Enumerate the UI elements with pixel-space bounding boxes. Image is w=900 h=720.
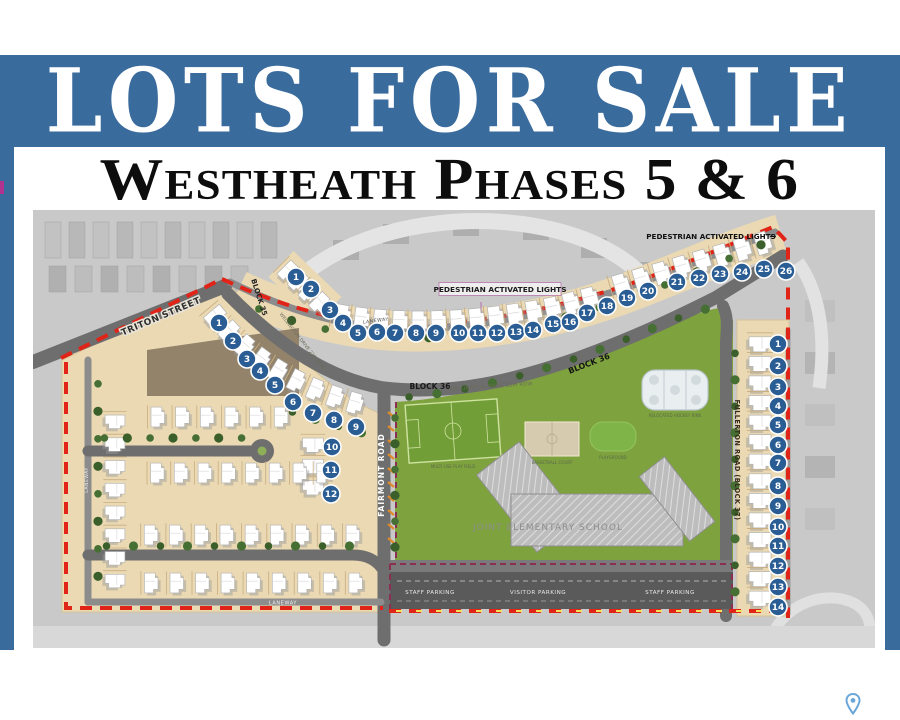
lot-number-text: 9 (433, 329, 439, 339)
tree (701, 305, 710, 314)
lot-marker-north-26: 26 (777, 262, 795, 280)
lot-number-text: 14 (527, 326, 540, 336)
lot-marker-north-19: 19 (618, 289, 636, 307)
lot-number-text: 2 (230, 337, 236, 347)
lot-marker-east-2: 2 (769, 357, 787, 375)
lot-marker-north-22: 22 (690, 269, 708, 287)
lot-number-text: 1 (216, 319, 222, 329)
subtitle-band: Westheath Phases 5 & 6 (14, 147, 885, 210)
soccer-field (405, 399, 501, 463)
lot-marker-inner-9: 9 (347, 418, 365, 436)
site-plan-map: TRITON STREET BLOCK 35 LANEWAY PEDESTRIA… (33, 210, 875, 648)
lot-number-text: 4 (257, 367, 263, 377)
lot-marker-east-5: 5 (769, 416, 787, 434)
tree (405, 393, 413, 401)
lot-number-text: 3 (327, 306, 333, 316)
lot-marker-east-13: 13 (769, 578, 787, 596)
basketball-court (525, 422, 579, 456)
lot-number-text: 8 (413, 329, 419, 339)
lot-number-text: 4 (775, 402, 781, 412)
street-label-laneway-bottom: LANEWAY (269, 601, 298, 607)
lot-marker-north-7: 7 (386, 324, 404, 342)
lot-marker-east-1: 1 (769, 335, 787, 353)
lot-marker-north-16: 16 (561, 313, 579, 331)
tree (675, 314, 683, 322)
playground-label: PLAYGROUND (599, 455, 627, 460)
lot-marker-north-17: 17 (578, 304, 596, 322)
map-pin-icon (845, 693, 861, 715)
tree (730, 534, 739, 543)
lot-marker-inner-5: 5 (266, 376, 284, 394)
lot-marker-east-3: 3 (769, 378, 787, 396)
lot-number-text: 5 (775, 421, 781, 431)
lot-marker-inner-1: 1 (210, 314, 228, 332)
lot-marker-north-9: 9 (427, 324, 445, 342)
lot-number-text: 6 (374, 328, 380, 338)
tree (322, 325, 330, 333)
tree (731, 562, 739, 570)
lot-marker-north-20: 20 (639, 282, 657, 300)
block-label-36a: BLOCK 36 (410, 382, 451, 391)
lot-number-text: 11 (325, 466, 338, 476)
sign-ped-lights-ne-arrow: → (770, 232, 777, 241)
tree (345, 541, 354, 550)
lot-marker-north-14: 14 (524, 321, 542, 339)
lot-number-text: 24 (736, 268, 749, 278)
street-label-laneway-left: LANEWAY (84, 467, 90, 493)
lot-marker-north-12: 12 (488, 324, 506, 342)
lot-marker-inner-12: 12 (322, 485, 340, 503)
lot-marker-north-18: 18 (598, 297, 616, 315)
lot-number-text: 12 (772, 562, 785, 572)
lot-marker-north-11: 11 (469, 324, 487, 342)
lot-number-text: 19 (621, 294, 634, 304)
tree (319, 542, 327, 550)
tree (183, 541, 192, 550)
tree (94, 435, 102, 443)
lot-number-text: 25 (758, 265, 771, 275)
lot-marker-inner-6: 6 (284, 393, 302, 411)
parking-label-staff-east: STAFF PARKING (645, 590, 695, 596)
tree (93, 572, 102, 581)
tree (756, 240, 765, 249)
lot-number-text: 3 (775, 383, 781, 393)
lot-number-text: 8 (775, 482, 781, 492)
lot-marker-east-11: 11 (769, 537, 787, 555)
playground (590, 422, 636, 451)
tree (129, 541, 138, 550)
site-plan-svg: TRITON STREET BLOCK 35 LANEWAY PEDESTRIA… (33, 210, 875, 648)
sign-ped-lights-mid: PEDESTRIAN ACTIVATED LIGHTS (433, 283, 566, 296)
cul-de-sac-island (258, 447, 267, 456)
tree (93, 407, 102, 416)
lot-marker-east-9: 9 (769, 497, 787, 515)
tree (101, 434, 109, 442)
tree (542, 363, 551, 372)
lot-marker-north-5: 5 (349, 324, 367, 342)
lot-marker-east-7: 7 (769, 454, 787, 472)
lot-marker-east-8: 8 (769, 477, 787, 495)
lot-marker-east-14: 14 (769, 598, 787, 616)
lot-number-text: 23 (714, 270, 727, 280)
lot-number-text: 14 (772, 603, 785, 613)
tree (516, 372, 524, 380)
lot-number-text: 1 (775, 340, 781, 350)
lot-marker-north-15: 15 (544, 315, 562, 333)
lot-marker-inner-4: 4 (251, 362, 269, 380)
lot-number-text: 10 (453, 329, 466, 339)
lot-marker-north-21: 21 (668, 273, 686, 291)
tree (391, 466, 399, 474)
school-parking (390, 560, 733, 609)
tree (192, 434, 200, 442)
lot-marker-north-10: 10 (450, 324, 468, 342)
lot-marker-north-1: 1 (287, 268, 305, 286)
lot-number-text: 7 (775, 459, 781, 469)
lot-number-text: 18 (601, 302, 614, 312)
lot-marker-inner-8: 8 (325, 411, 343, 429)
tree (725, 255, 733, 263)
lot-number-text: 6 (290, 398, 296, 408)
parking-label-staff-west: STAFF PARKING (405, 590, 455, 596)
lot-number-text: 12 (491, 329, 504, 339)
tree (730, 375, 739, 384)
lot-number-text: 5 (355, 329, 361, 339)
tree (211, 542, 219, 550)
tree (93, 517, 102, 526)
subtitle-text: Westheath Phases 5 & 6 (100, 149, 800, 208)
lot-number-text: 13 (772, 583, 785, 593)
lot-number-text: 6 (775, 441, 781, 451)
tree (390, 543, 399, 552)
lot-marker-north-23: 23 (711, 265, 729, 283)
tree (94, 380, 102, 388)
tree (94, 545, 102, 553)
lot-marker-north-2: 2 (302, 280, 320, 298)
lot-marker-east-4: 4 (769, 397, 787, 415)
tree (123, 433, 132, 442)
lot-marker-north-13: 13 (507, 323, 525, 341)
lot-marker-east-6: 6 (769, 436, 787, 454)
tree (168, 433, 177, 442)
lot-number-text: 16 (564, 318, 577, 328)
lot-number-text: 7 (392, 329, 398, 339)
lot-marker-north-25: 25 (755, 260, 773, 278)
tree (237, 541, 246, 550)
lot-marker-inner-10: 10 (323, 438, 341, 456)
lot-marker-north-6: 6 (368, 323, 386, 341)
tree (390, 439, 399, 448)
lot-marker-east-10: 10 (769, 518, 787, 536)
lot-number-text: 11 (772, 542, 785, 552)
rink-label: RELOCATED HOCKEY RINK (649, 413, 702, 418)
tree (391, 518, 399, 526)
right-border-bar (885, 55, 900, 650)
tree (291, 541, 300, 550)
lot-number-text: 3 (244, 355, 250, 365)
hockey-rink (642, 370, 708, 410)
tree (103, 542, 111, 550)
court-label: BASKETBALL COURT (532, 460, 573, 465)
tree (623, 335, 631, 343)
tree (648, 324, 657, 333)
lot-number-text: 13 (510, 328, 523, 338)
street-label-fairmont: FAIRMONT ROAD (377, 433, 386, 516)
field-label: MULTI-USE PLAY FIELD (431, 464, 476, 469)
lot-marker-inner-7: 7 (304, 404, 322, 422)
school-label: JOINT ELEMENTARY SCHOOL (472, 523, 623, 533)
tree (265, 542, 273, 550)
lot-marker-north-24: 24 (733, 263, 751, 281)
lot-number-text: 17 (581, 309, 594, 319)
title-banner: LOTS FOR SALE (0, 55, 900, 147)
lot-number-text: 9 (353, 423, 359, 433)
lot-number-text: 10 (326, 443, 339, 453)
lot-number-text: 10 (772, 523, 785, 533)
tree (94, 490, 102, 498)
sign-ped-lights-mid-text: PEDESTRIAN ACTIVATED LIGHTS (433, 285, 566, 294)
tree (390, 491, 399, 500)
tree (570, 355, 578, 363)
tree (238, 434, 246, 442)
left-border-bar (0, 55, 14, 650)
lot-number-text: 7 (310, 409, 316, 419)
street-label-fullerton: FULLERTON ROAD (BLOCK 37) (733, 400, 741, 521)
lot-number-text: 4 (340, 319, 346, 329)
aerial-road-south (33, 626, 875, 648)
lot-marker-inner-11: 11 (322, 461, 340, 479)
lot-number-text: 21 (671, 278, 684, 288)
edge-artifact (0, 181, 4, 194)
lot-number-text: 5 (272, 381, 278, 391)
lot-number-text: 2 (308, 285, 314, 295)
tree (157, 542, 165, 550)
lot-number-text: 11 (472, 329, 485, 339)
tree (93, 462, 102, 471)
lot-number-text: 26 (780, 267, 793, 277)
lot-marker-north-8: 8 (407, 324, 425, 342)
lot-number-text: 20 (642, 287, 655, 297)
lot-number-text: 9 (775, 502, 781, 512)
tree (146, 434, 154, 442)
tree (731, 350, 739, 358)
page-title: LOTS FOR SALE (46, 57, 854, 145)
lot-number-text: 2 (775, 362, 781, 372)
lot-number-text: 8 (331, 416, 337, 426)
lot-marker-east-12: 12 (769, 557, 787, 575)
lot-marker-inner-2: 2 (224, 332, 242, 350)
tree (730, 587, 739, 596)
flyer-page: LOTS FOR SALE Westheath Phases 5 & 6 (0, 0, 900, 720)
tree (391, 414, 399, 422)
lot-number-text: 1 (293, 273, 299, 283)
tree (214, 433, 223, 442)
lot-number-text: 22 (693, 274, 706, 284)
sign-ped-lights-ne: PEDESTRIAN ACTIVATED LIGHTS (646, 232, 775, 241)
parking-label-visitor: VISITOR PARKING (510, 590, 566, 596)
lot-number-text: 15 (547, 320, 560, 330)
lot-number-text: 12 (325, 490, 338, 500)
